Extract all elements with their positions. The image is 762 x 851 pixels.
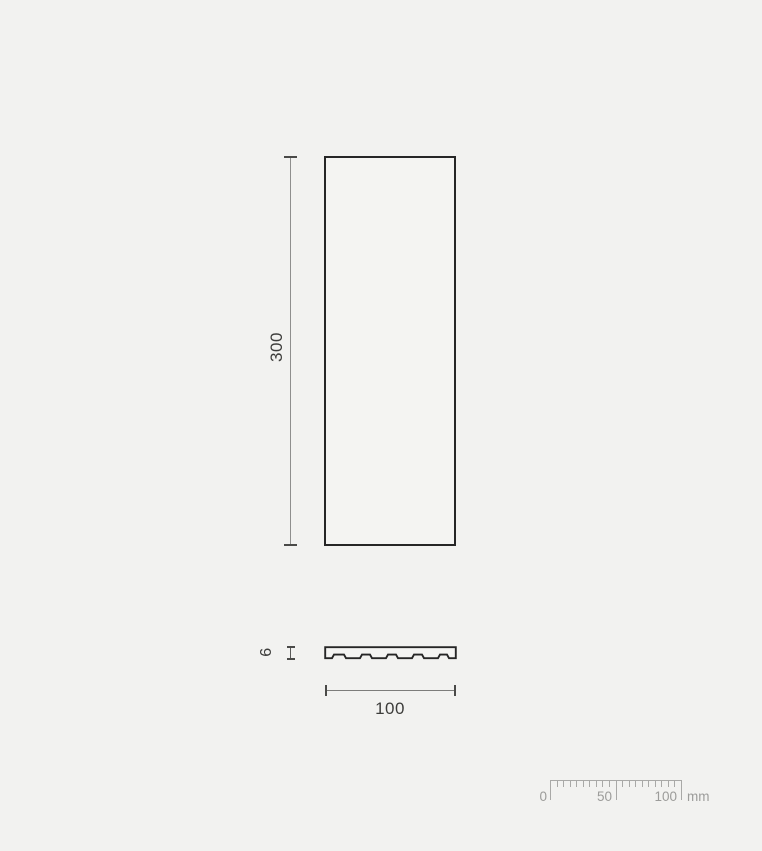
thickness-dimension-tick-top [287,646,295,648]
drawing-canvas: 300 6 100 0 50 100 mm [0,0,762,851]
width-dimension-label: 100 [360,699,420,719]
scale-ruler-minor-tick [589,780,590,787]
scale-ruler-label-50: 50 [597,789,612,804]
scale-ruler-minor-tick [570,780,571,787]
panel-section-outline [324,646,457,660]
scale-ruler-minor-tick [661,780,662,787]
scale-ruler-minor-tick [609,780,610,787]
height-dimension-line [290,157,291,545]
scale-ruler-minor-tick [668,780,669,787]
scale-ruler-unit-label: mm [687,789,710,804]
thickness-dimension-label: 6 [259,639,275,665]
scale-ruler-minor-tick [557,780,558,787]
scale-ruler-label-0: 0 [539,789,547,804]
scale-ruler-minor-tick [674,780,675,787]
scale-ruler-minor-tick [563,780,564,787]
panel-front-view [324,156,456,546]
width-dimension-tick-right [454,685,456,696]
scale-ruler-minor-tick [622,780,623,787]
panel-section-view [324,646,457,660]
height-dimension-tick-bottom [284,544,297,546]
scale-ruler-minor-tick [576,780,577,787]
scale-ruler-minor-tick [602,780,603,787]
width-dimension-tick-left [325,685,327,696]
thickness-dimension-tick-bottom [287,658,295,660]
scale-ruler-minor-tick [629,780,630,787]
scale-ruler-major-tick [616,780,617,800]
scale-ruler-minor-tick [655,780,656,787]
height-dimension-label: 300 [268,323,286,371]
scale-ruler-minor-tick [583,780,584,787]
scale-ruler-minor-tick [642,780,643,787]
scale-ruler-minor-tick [635,780,636,787]
width-dimension-line [325,690,455,691]
height-dimension-tick-top [284,156,297,158]
scale-ruler-major-tick [681,780,682,800]
scale-ruler-minor-tick [648,780,649,787]
scale-ruler-minor-tick [596,780,597,787]
scale-ruler-major-tick [550,780,551,800]
scale-ruler-label-100: 100 [654,789,677,804]
